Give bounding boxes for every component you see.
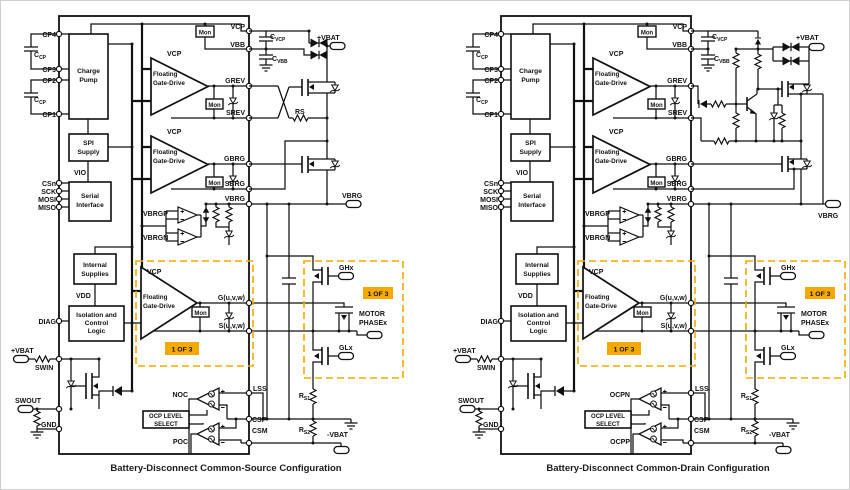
terminal-nvbat-label: -VBAT <box>327 432 349 439</box>
gate-drive-1: Floating <box>595 71 620 78</box>
terminal-ghx-label: GHx <box>781 265 796 272</box>
mon-3: Mon <box>636 311 649 317</box>
pin-label-csp: CSP <box>252 417 267 424</box>
gate-drive-2: Floating <box>153 149 178 156</box>
pin-label-cp1: CP1 <box>484 112 498 119</box>
mon-1: Mon <box>208 103 221 109</box>
svg-text:Interface: Interface <box>518 202 546 209</box>
terminal-vbrg-label: VBRG <box>818 213 839 220</box>
pin-label-csm: CSM <box>252 428 268 435</box>
block-isolation: Isolation and <box>76 312 117 319</box>
pin-label-sck: SCK <box>483 189 498 196</box>
pin-label-vcp: VCP <box>231 24 246 31</box>
pin-label-cp2: CP2 <box>42 78 56 85</box>
pin-label-cp3: CP3 <box>42 67 56 74</box>
block-ocp-select: OCP LEVEL <box>591 414 625 420</box>
mon-top: Mon <box>641 31 654 37</box>
pin-label-grev: GREV <box>225 78 245 85</box>
mon-2: Mon <box>650 181 663 187</box>
svg-text:Supply: Supply <box>520 149 542 156</box>
pin-label-gnd: GND <box>41 422 57 429</box>
svg-text:PHASEx: PHASEx <box>801 320 829 327</box>
pin-label-vbrg: VBRG <box>667 196 688 203</box>
svg-text:SELECT: SELECT <box>154 422 178 428</box>
svg-text:Gate-Drive: Gate-Drive <box>143 303 175 310</box>
block-charge-pump: Charge <box>77 68 100 75</box>
svg-text:Gate-Drive: Gate-Drive <box>595 158 627 165</box>
pin-label-csn: CSn <box>484 181 498 188</box>
ocp-top-label: OCPN <box>610 392 630 399</box>
cap-cvcp-label: CVCP <box>270 34 286 43</box>
pin-label-cp2: CP2 <box>484 78 498 85</box>
ic-schematic-left <box>14 16 404 454</box>
pin-label-srev: SREV <box>226 110 245 117</box>
mon-3: Mon <box>194 311 207 317</box>
pin-label-mosi: MOSI <box>38 197 56 204</box>
terminal-pvbat-right: +VBAT <box>796 35 819 42</box>
block-ocp-select: OCP LEVEL <box>149 414 183 420</box>
svg-text:Supply: Supply <box>78 149 100 156</box>
cap-ccp2-label: CCP <box>476 97 489 106</box>
pin-label-csm: CSM <box>694 428 710 435</box>
svg-text:Supplies: Supplies <box>81 271 109 278</box>
svg-text:Control: Control <box>527 320 551 327</box>
pin-label-mosi: MOSI <box>480 197 498 204</box>
pin-label-swin: SWIN <box>35 365 53 372</box>
terminal-vbrg-label: VBRG <box>342 193 363 200</box>
block-internal-supplies: Internal <box>525 262 549 269</box>
left-diagram: CP4 CCP CP3 CP2 CCP CP1 Charge Pump SPI … <box>11 16 403 474</box>
net-vio: VIO <box>74 170 87 177</box>
pin-label-diag: DIAG <box>39 319 57 326</box>
pin-label-swout: SWOUT <box>458 398 485 405</box>
pin-label-sbrg: SBRG <box>225 181 246 188</box>
svg-text:Pump: Pump <box>79 77 97 84</box>
resistor-rs-label: RS <box>295 109 305 116</box>
svg-text:Interface: Interface <box>76 202 104 209</box>
pin-label-grev: GREV <box>667 78 687 85</box>
resistor-rs2-label: RS2 <box>741 427 752 436</box>
common-source-external <box>249 30 361 208</box>
svg-text:Gate-Drive: Gate-Drive <box>153 80 185 87</box>
net-vdd: VDD <box>518 293 533 300</box>
pin-label-guvw: G(u,v,w) <box>218 295 245 302</box>
pin-label-sbrg: SBRG <box>667 181 688 188</box>
terminal-glx-label: GLx <box>781 345 795 352</box>
block-serial-interface: Serial <box>523 193 541 200</box>
pin-label-lss: LSS <box>253 386 267 393</box>
pin-label-cp4: CP4 <box>42 32 56 39</box>
terminal-pvbat-left: +VBAT <box>11 348 34 355</box>
terminal-pvbat-right: +VBAT <box>317 35 340 42</box>
net-vbrgp: VBRGP <box>143 211 168 218</box>
svg-text:PHASEx: PHASEx <box>359 320 387 327</box>
block-spi-supply: SPI <box>83 140 94 147</box>
gate-drive-3: Floating <box>143 294 168 301</box>
dual-schematic: CP4 CCP CP3 CP2 CCP CP1 Charge Pump SPI … <box>1 1 850 490</box>
pin-label-lss: LSS <box>695 386 709 393</box>
pin-label-csp: CSP <box>694 417 709 424</box>
pin-label-vcp: VCP <box>673 24 688 31</box>
resistor-rs2-label: RS2 <box>299 427 310 436</box>
caption-left: Battery-Disconnect Common-Source Configu… <box>110 463 341 474</box>
pin-label-gnd: GND <box>483 422 499 429</box>
ocp-bottom-label: POC <box>173 439 188 446</box>
schematic-page: CP4 CCP CP3 CP2 CCP CP1 Charge Pump SPI … <box>0 0 850 490</box>
svg-text:Logic: Logic <box>88 328 106 335</box>
svg-text:Supplies: Supplies <box>523 271 551 278</box>
one-of-3-drive: 1 OF 3 <box>614 347 635 354</box>
cap-cvbb-label: CVBB <box>714 56 730 65</box>
svg-text:Gate-Drive: Gate-Drive <box>585 303 617 310</box>
net-vbrgp: VBRGP <box>585 211 610 218</box>
pin-label-vbb: VBB <box>230 42 245 49</box>
svg-text:SELECT: SELECT <box>596 422 620 428</box>
block-isolation: Isolation and <box>518 312 559 319</box>
resistor-rs1-label: RS1 <box>299 393 310 402</box>
pin-label-swin: SWIN <box>477 365 495 372</box>
block-internal-supplies: Internal <box>83 262 107 269</box>
net-vcp-t2: VCP <box>167 129 182 136</box>
pin-label-suvw: S(u,v,w) <box>219 323 245 330</box>
terminal-motor-label: MOTOR <box>359 311 385 318</box>
cap-cvcp-label: CVCP <box>712 34 728 43</box>
net-vcp-t1: VCP <box>609 51 624 58</box>
block-charge-pump: Charge <box>519 68 542 75</box>
net-vcp-t3: VCP <box>589 269 604 276</box>
mon-top: Mon <box>199 31 212 37</box>
right-diagram: CP4 CCP CP3 CP2 CCP CP1 Charge Pump SPI … <box>453 16 845 474</box>
pin-label-csn: CSn <box>42 181 56 188</box>
net-vcp-t1: VCP <box>167 51 182 58</box>
pin-label-diag: DIAG <box>481 319 499 326</box>
mon-2: Mon <box>208 181 221 187</box>
cap-ccp1-label: CCP <box>476 52 489 61</box>
pin-label-cp4: CP4 <box>484 32 498 39</box>
pin-label-cp1: CP1 <box>42 112 56 119</box>
pin-label-gbrg: GBRG <box>666 156 688 163</box>
cap-ccp1-label: CCP <box>34 52 47 61</box>
pin-label-sck: SCK <box>41 189 56 196</box>
ocp-bottom-label: OCPP <box>610 439 630 446</box>
one-of-3-drive: 1 OF 3 <box>172 347 193 354</box>
net-vcp-t2: VCP <box>609 129 624 136</box>
net-vcp-t3: VCP <box>147 269 162 276</box>
block-serial-interface: Serial <box>81 193 99 200</box>
caption-right: Battery-Disconnect Common-Drain Configur… <box>546 463 769 474</box>
net-vio: VIO <box>516 170 529 177</box>
pin-label-vbrg: VBRG <box>225 196 246 203</box>
ocp-top-label: NOC <box>172 392 188 399</box>
terminal-nvbat-label: -VBAT <box>769 432 791 439</box>
pin-label-guvw: G(u,v,w) <box>660 295 687 302</box>
cap-cvbb-label: CVBB <box>272 56 288 65</box>
svg-text:Logic: Logic <box>530 328 548 335</box>
svg-text:Pump: Pump <box>521 77 539 84</box>
gate-drive-1: Floating <box>153 71 178 78</box>
terminal-ghx-label: GHx <box>339 265 354 272</box>
terminal-pvbat-left: +VBAT <box>453 348 476 355</box>
net-vbrgn: VBRGN <box>585 235 610 242</box>
pin-label-cp3: CP3 <box>484 67 498 74</box>
pin-label-vbb: VBB <box>672 42 687 49</box>
pin-label-suvw: S(u,v,w) <box>661 323 687 330</box>
ic-schematic-right <box>456 16 846 454</box>
terminal-glx-label: GLx <box>339 345 353 352</box>
one-of-3-motor: 1 OF 3 <box>368 291 389 298</box>
cap-ccp2-label: CCP <box>34 97 47 106</box>
pin-label-srev: SREV <box>668 110 687 117</box>
svg-text:Gate-Drive: Gate-Drive <box>595 80 627 87</box>
svg-text:Control: Control <box>85 320 109 327</box>
gate-drive-2: Floating <box>595 149 620 156</box>
pin-label-swout: SWOUT <box>15 398 42 405</box>
pin-label-miso: MISO <box>480 205 498 212</box>
mon-1: Mon <box>650 103 663 109</box>
gate-drive-3: Floating <box>585 294 610 301</box>
pin-label-miso: MISO <box>38 205 56 212</box>
net-vdd: VDD <box>76 293 91 300</box>
svg-text:Gate-Drive: Gate-Drive <box>153 158 185 165</box>
block-spi-supply: SPI <box>525 140 536 147</box>
pin-label-gbrg: GBRG <box>224 156 246 163</box>
one-of-3-motor: 1 OF 3 <box>810 291 831 298</box>
resistor-rs1-label: RS1 <box>741 393 752 402</box>
net-vbrgn: VBRGN <box>143 235 168 242</box>
terminal-motor-label: MOTOR <box>801 311 827 318</box>
